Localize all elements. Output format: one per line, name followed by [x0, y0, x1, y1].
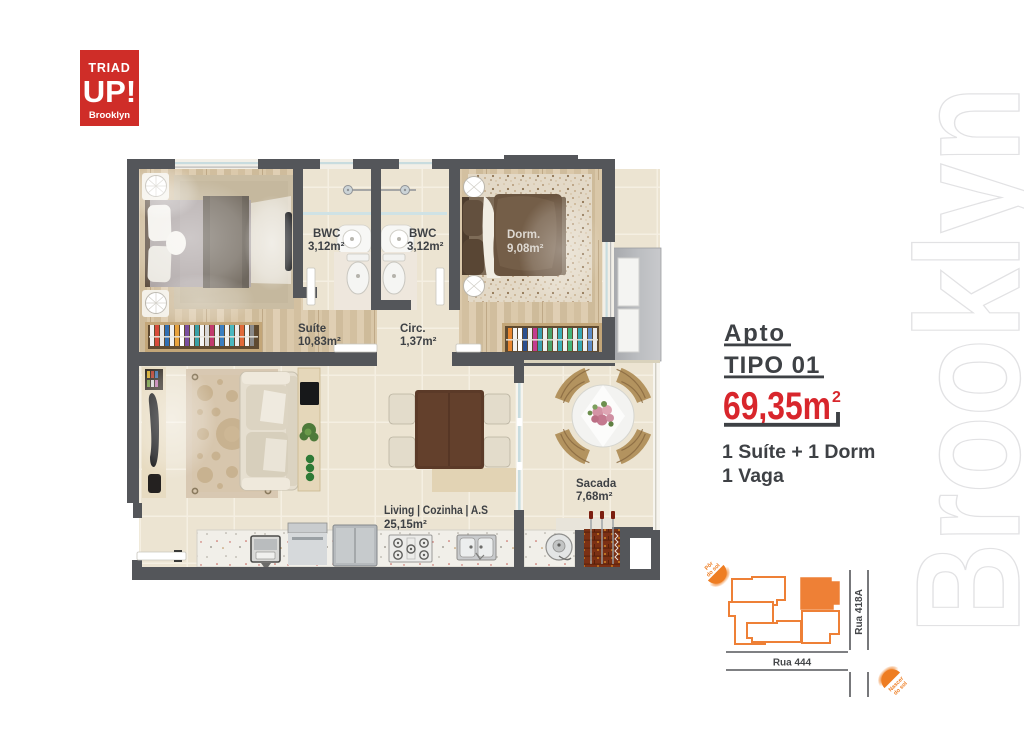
svg-text:1 Vaga: 1 Vaga	[722, 465, 784, 487]
svg-text:UP!: UP!	[83, 74, 136, 109]
svg-text:3,12m²: 3,12m²	[308, 241, 345, 253]
svg-text:1 Suíte + 1 Dorm: 1 Suíte + 1 Dorm	[722, 441, 875, 463]
svg-text:3,12m²: 3,12m²	[407, 241, 444, 253]
svg-text:BWC: BWC	[409, 228, 436, 240]
svg-text:9,08m²: 9,08m²	[507, 243, 544, 255]
svg-text:TIPO 01: TIPO 01	[724, 352, 820, 379]
svg-text:Living | Cozinha | A.S: Living | Cozinha | A.S	[384, 505, 488, 517]
svg-text:TRIAD: TRIAD	[88, 61, 130, 75]
svg-text:Sacada: Sacada	[576, 478, 617, 490]
svg-text:BWC: BWC	[313, 228, 340, 240]
svg-text:1,37m²: 1,37m²	[400, 336, 437, 348]
svg-text:Brooklyn: Brooklyn	[89, 110, 130, 121]
svg-text:Suíte: Suíte	[298, 323, 326, 335]
svg-text:Rua 418A: Rua 418A	[854, 589, 865, 635]
svg-text:Brooklyn: Brooklyn	[886, 86, 1024, 634]
svg-text:Dorm.: Dorm.	[507, 229, 540, 241]
svg-text:7,68m²: 7,68m²	[576, 491, 613, 503]
svg-text:2: 2	[832, 389, 841, 406]
svg-text:Circ.: Circ.	[400, 323, 426, 335]
svg-text:Rua 444: Rua 444	[773, 658, 812, 669]
svg-text:69,35m: 69,35m	[723, 385, 831, 428]
svg-text:25,15m²: 25,15m²	[384, 519, 427, 531]
svg-text:10,83m²: 10,83m²	[298, 336, 341, 348]
svg-text:Apto: Apto	[724, 320, 786, 347]
